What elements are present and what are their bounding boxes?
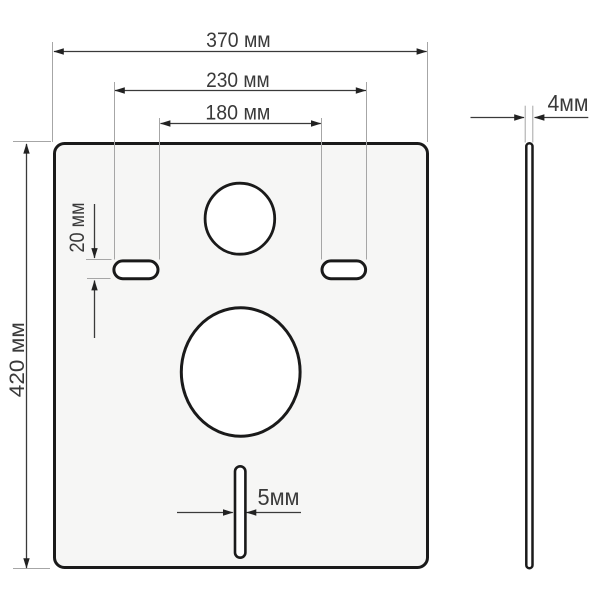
svg-text:4мм: 4мм <box>548 90 589 116</box>
svg-text:420 мм: 420 мм <box>5 322 29 397</box>
svg-text:230 мм: 230 мм <box>206 68 270 92</box>
svg-text:5мм: 5мм <box>258 484 300 510</box>
svg-text:180 мм: 180 мм <box>205 101 270 125</box>
svg-text:20 мм: 20 мм <box>65 203 89 253</box>
svg-text:370 мм: 370 мм <box>206 28 271 52</box>
